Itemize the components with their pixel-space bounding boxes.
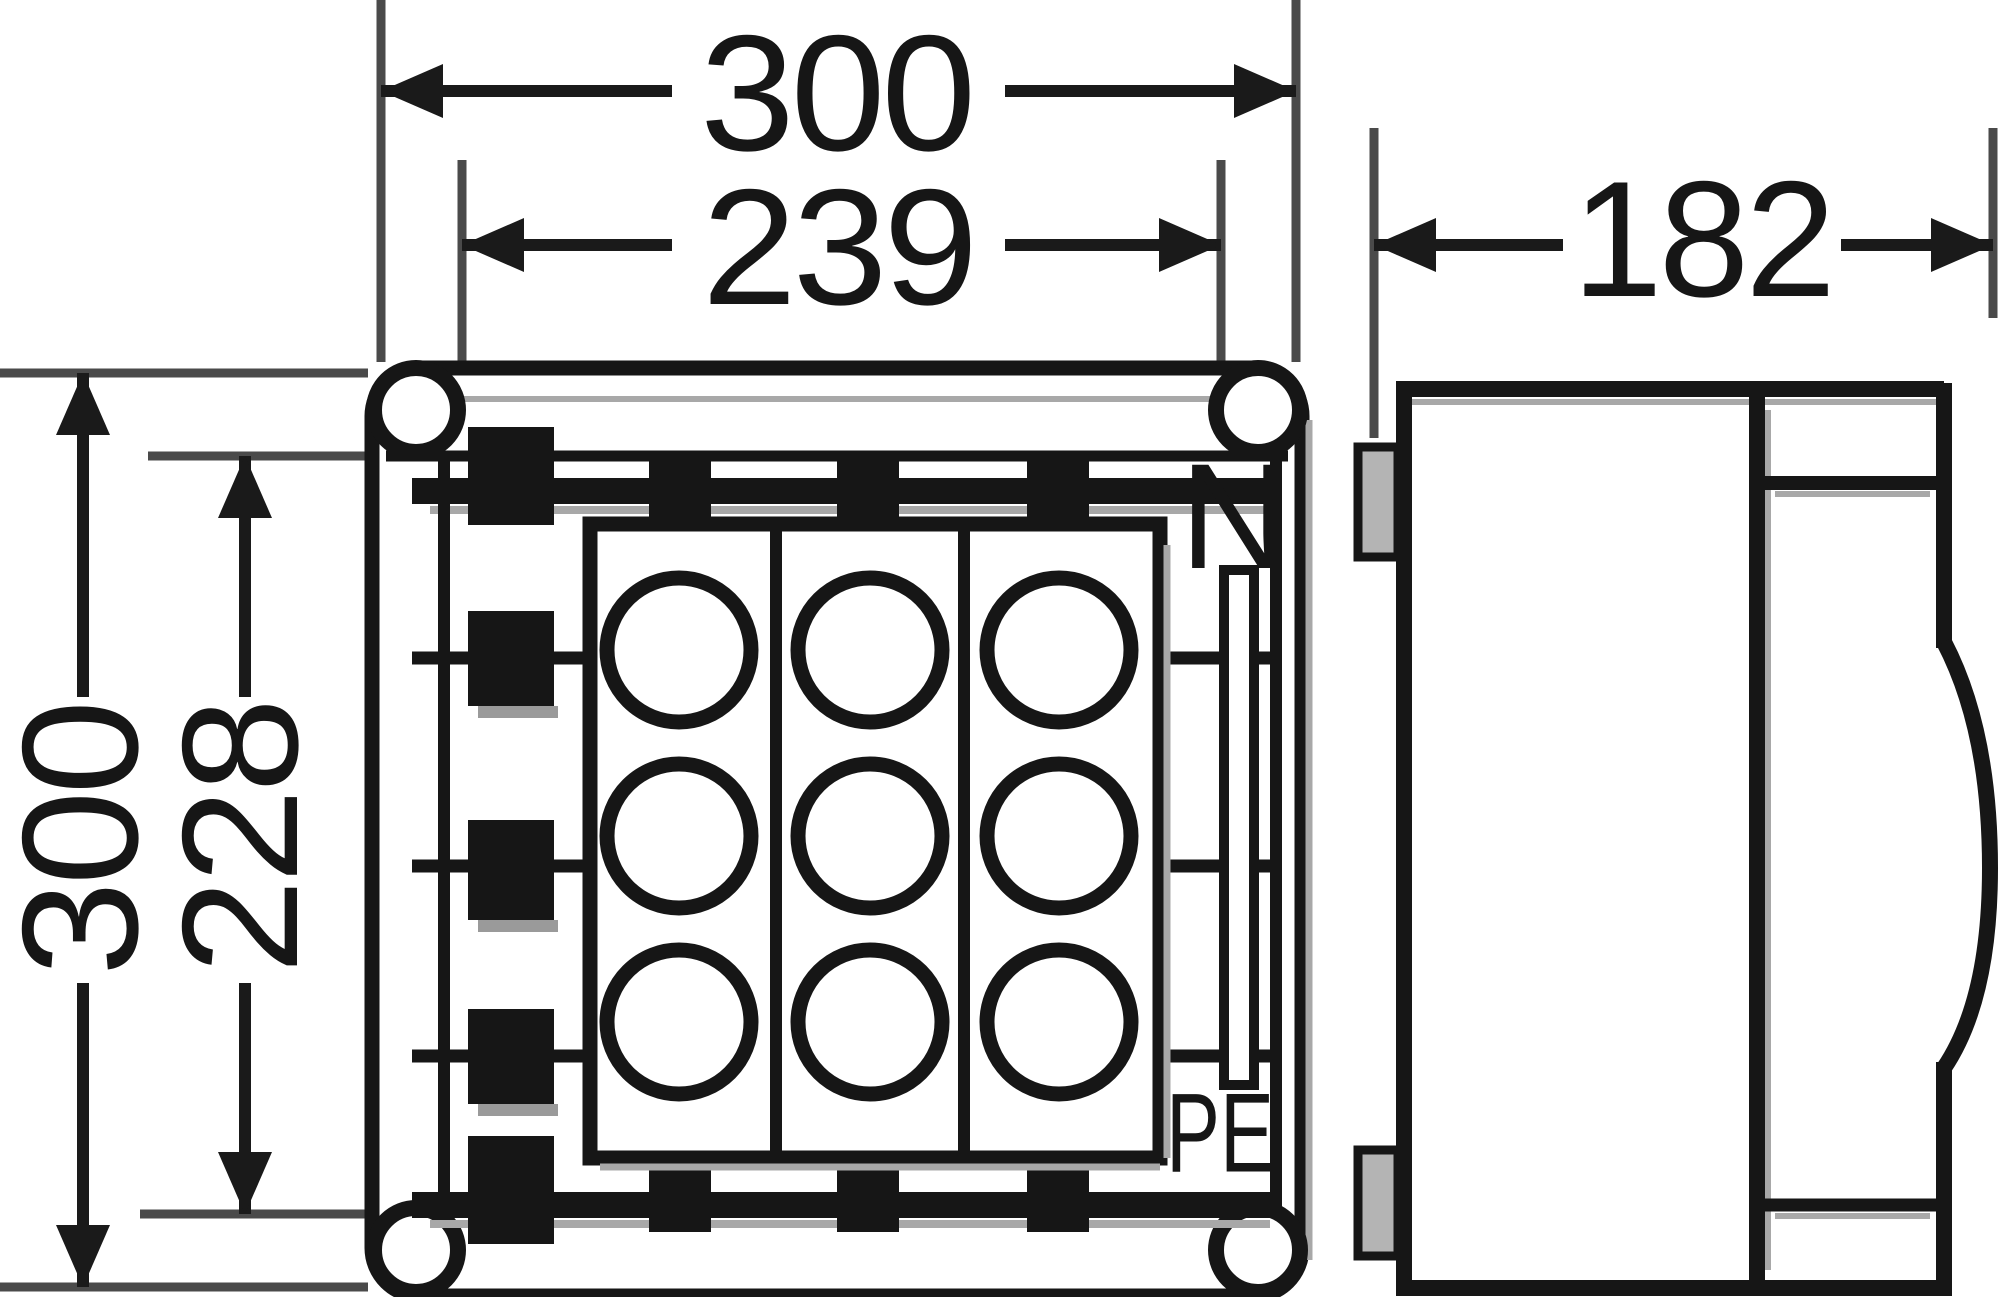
arrowhead-up-icon [56, 373, 110, 435]
arrowhead-right-icon [1931, 218, 1993, 272]
left-knockout-tabs [468, 611, 554, 1104]
cable-entry-knockout [798, 950, 942, 1094]
cover-screw-lug-bottom [1358, 1150, 1398, 1256]
front-view: N PE [372, 368, 1309, 1296]
gland-plate [590, 524, 1167, 1167]
cable-entry-knockout [798, 764, 942, 908]
arrowhead-down-icon [56, 1225, 110, 1287]
dimension-inner-width-label: 239 [702, 155, 974, 339]
tab-shadow [478, 920, 558, 932]
arrowhead-up-icon [218, 456, 272, 518]
arrowhead-left-icon [1374, 218, 1436, 272]
cable-entry-knockout [607, 764, 751, 908]
arrowhead-right-icon [1234, 64, 1296, 118]
dimension-outer-height-label: 300 [0, 704, 172, 976]
arrowhead-down-icon [218, 1152, 272, 1214]
drawing-canvas: 300 239 182 300 228 [0, 0, 2000, 1297]
cable-entry-knockout [798, 578, 942, 722]
cover-screw-lug-top [1358, 447, 1398, 557]
knockout-tab [837, 1164, 899, 1232]
arrowhead-left-icon [462, 218, 524, 272]
cable-entry-knockout [987, 578, 1131, 722]
cable-entry-knockout [607, 578, 751, 722]
knockout-tab [1027, 1164, 1089, 1232]
n-pe-terminal-bar [1224, 570, 1254, 1085]
arrowhead-left-icon [381, 64, 443, 118]
knockout-tab-large [468, 427, 554, 525]
cable-entry-knockout [987, 764, 1131, 908]
tab-shadow [478, 706, 558, 718]
corner-screw [374, 368, 458, 452]
dimension-inner-height-label: 228 [148, 702, 332, 974]
tab-shadow [478, 1104, 558, 1116]
neutral-terminal-label: N [1180, 432, 1288, 600]
earth-terminal-label: PE [1166, 1071, 1274, 1196]
cable-entry-knockout [987, 950, 1131, 1094]
knockout-tab [649, 1164, 711, 1232]
side-view [1358, 383, 1994, 1296]
arrowhead-right-icon [1159, 218, 1221, 272]
cable-entry-knockout [607, 950, 751, 1094]
knockout-tab-large [468, 1136, 554, 1244]
dimension-drawing: 300 239 182 300 228 [0, 0, 2000, 1297]
side-body-fill [1398, 385, 1994, 1292]
cable-entries [607, 578, 1131, 1094]
dimension-depth-label: 182 [1572, 147, 1832, 331]
